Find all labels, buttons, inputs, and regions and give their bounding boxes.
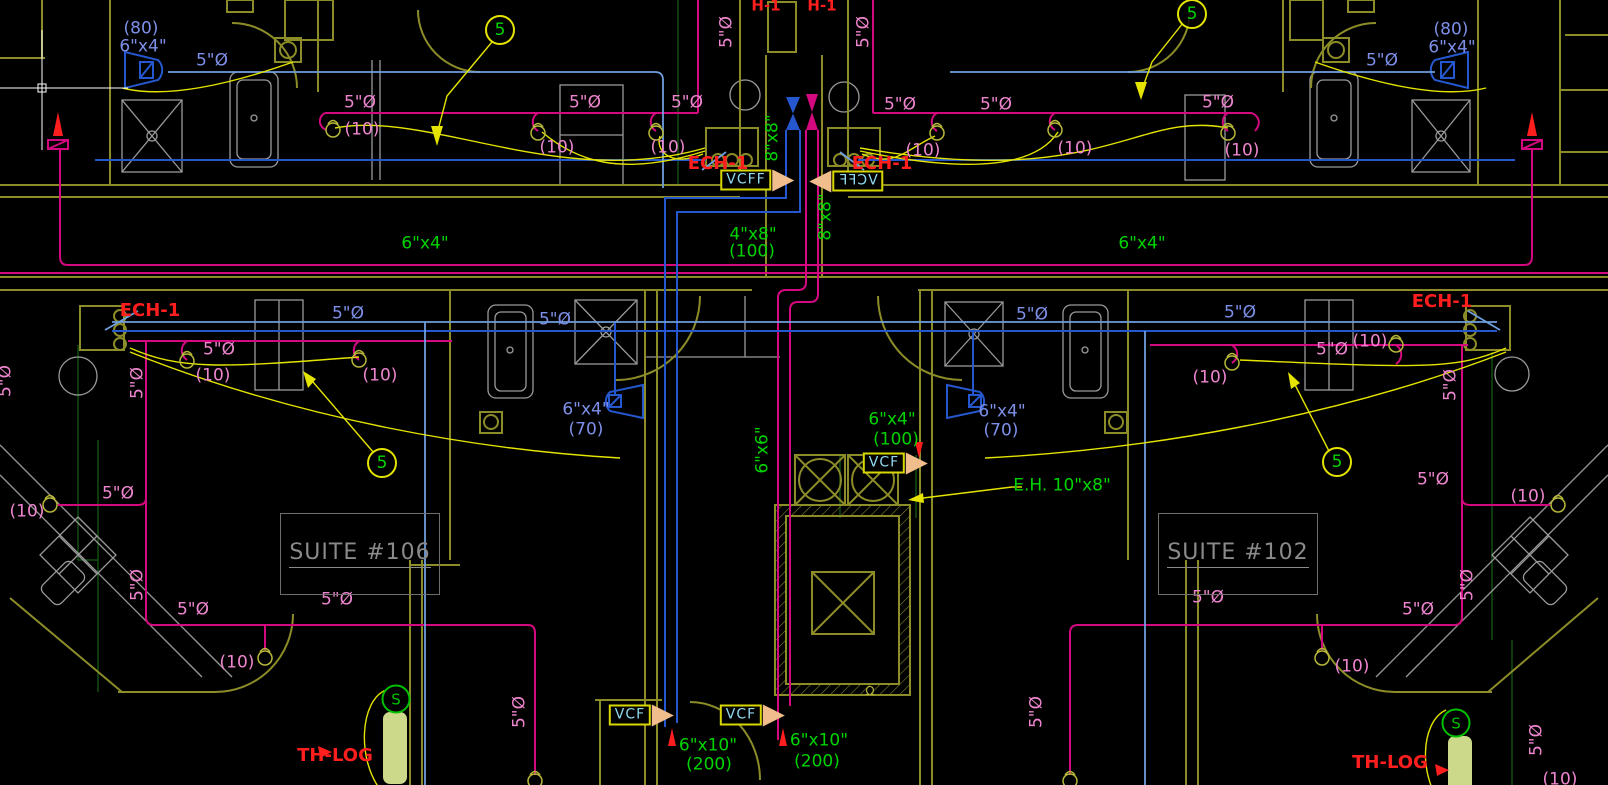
airflow-label: (100) xyxy=(873,432,919,449)
door-symbol: Ω xyxy=(865,685,874,697)
diameter-label: 5"Ø xyxy=(102,486,134,503)
diameter-label: 5"Ø xyxy=(1417,472,1449,489)
damper-flag-label: VCFF xyxy=(726,172,765,188)
airflow-label: (80) xyxy=(124,21,159,38)
damper-triangle-icon xyxy=(773,169,795,191)
damper-flag-box: VCFF xyxy=(720,170,771,191)
airflow-label: (200) xyxy=(794,754,840,771)
damper-flag-box: VCF xyxy=(863,453,905,474)
thermostat-tag: TH-LOG xyxy=(297,747,373,765)
airflow-label: (10) xyxy=(651,140,686,157)
equipment-tag: ECH-1 xyxy=(1412,293,1473,311)
airflow-label: (10) xyxy=(196,368,231,385)
diameter-label: 5"Ø xyxy=(1029,696,1046,728)
duct-size-label: 6"x4" xyxy=(1428,40,1475,57)
airflow-label: (10) xyxy=(363,368,398,385)
diameter-label: 5"Ø xyxy=(671,95,703,112)
airflow-label: (70) xyxy=(569,422,604,439)
damper-flag-box: VCF xyxy=(720,705,762,726)
airflow-label: (10) xyxy=(1225,143,1260,160)
airflow-label: (70) xyxy=(984,423,1019,440)
diameter-label: 5"Ø xyxy=(203,342,235,359)
duct-size-label: 8"x8" xyxy=(765,114,782,161)
diameter-label: 5"Ø xyxy=(719,16,736,48)
diameter-label: 5"Ø xyxy=(1366,53,1398,70)
callout-balloon: 5 xyxy=(485,15,515,45)
diameter-label: 5"Ø xyxy=(177,602,209,619)
diameter-label: 5"Ø xyxy=(1316,342,1348,359)
airflow-label: (10) xyxy=(1353,334,1388,351)
suite-name-box: SUITE #102 xyxy=(1158,513,1318,595)
equipment-tag: H-1 xyxy=(807,0,836,14)
damper-flag-box: VCFF xyxy=(832,171,883,192)
duct-size-label: 6"x4" xyxy=(562,402,609,419)
airflow-label: (10) xyxy=(345,122,380,139)
diameter-label: 5"Ø xyxy=(1529,724,1546,756)
diameter-label: 5"Ø xyxy=(1460,569,1477,601)
callout-balloon: 5 xyxy=(367,448,397,478)
damper-triangle-icon xyxy=(652,704,674,726)
callout-balloon: 5 xyxy=(1177,0,1207,29)
suite-name-box: SUITE #106 xyxy=(280,513,440,595)
airflow-label: (10) xyxy=(10,504,45,521)
diameter-label: 5"Ø xyxy=(332,306,364,323)
diameter-label: 5"Ø xyxy=(856,16,873,48)
cad-drawing-canvas: (80)6"x4"5"Ø(80)6"x4"5"Ø5"Ø5"Ø5"Ø5"Ø6"x4… xyxy=(0,0,1608,785)
diameter-label: 5"Ø xyxy=(130,569,147,601)
duct-size-label: 6"x10" xyxy=(679,738,737,755)
duct-size-label: 6"x4" xyxy=(868,412,915,429)
thermostat-tag: TH-LOG xyxy=(1352,754,1428,772)
diameter-label: 5"Ø xyxy=(196,53,228,70)
damper-flag-box: VCF xyxy=(609,705,651,726)
callout-balloon: 5 xyxy=(1322,447,1352,477)
airflow-label: (200) xyxy=(686,757,732,774)
equipment-tag: ECH-1 xyxy=(120,302,181,320)
diameter-label: 5"Ø xyxy=(0,365,15,397)
airflow-label: (10) xyxy=(1058,141,1093,158)
sensor-symbol: S xyxy=(1442,709,1471,738)
diameter-label: 5"Ø xyxy=(1224,305,1256,322)
annotation-labels-layer: (80)6"x4"5"Ø(80)6"x4"5"Ø5"Ø5"Ø5"Ø5"Ø6"x4… xyxy=(0,0,1608,785)
damper-triangle-icon xyxy=(809,170,831,192)
equipment-tag: H-1 xyxy=(751,0,780,14)
diameter-label: 5"Ø xyxy=(512,696,529,728)
airflow-label: (10) xyxy=(1511,489,1546,506)
suite-name-label: SUITE #102 xyxy=(1167,540,1308,568)
duct-size-label: 6"x6" xyxy=(755,426,772,473)
airflow-label: (10) xyxy=(540,140,575,157)
suite-name-label: SUITE #106 xyxy=(289,540,430,568)
duct-size-label: 6"x4" xyxy=(119,39,166,56)
diameter-label: 5"Ø xyxy=(884,97,916,114)
damper-triangle-icon xyxy=(763,704,785,726)
diameter-label: 5"Ø xyxy=(130,367,147,399)
diameter-label: 5"Ø xyxy=(539,312,571,329)
diameter-label: 5"Ø xyxy=(1016,307,1048,324)
electric-heater-label: E.H. 10"x8" xyxy=(1013,478,1111,495)
duct-size-label: 8"x8" xyxy=(818,193,835,240)
airflow-label: (100) xyxy=(729,244,775,261)
damper-flag-label: VCFF xyxy=(838,174,877,189)
diameter-label: 5"Ø xyxy=(1202,95,1234,112)
airflow-label: (10) xyxy=(1335,659,1370,676)
diameter-label: 5"Ø xyxy=(1402,602,1434,619)
duct-size-label: 6"x4" xyxy=(978,404,1025,421)
diameter-label: 5"Ø xyxy=(1443,369,1460,401)
damper-flag-label: VCF xyxy=(615,707,645,723)
diameter-label: 5"Ø xyxy=(344,95,376,112)
diameter-label: 5"Ø xyxy=(980,97,1012,114)
airflow-label: (80) xyxy=(1434,22,1469,39)
airflow-label: (10) xyxy=(1193,370,1228,387)
diameter-label: 5"Ø xyxy=(569,95,601,112)
damper-flag-label: VCF xyxy=(869,455,899,471)
airflow-label: (10) xyxy=(1543,772,1578,785)
damper-flag-label: VCF xyxy=(726,707,756,723)
duct-size-label: 6"x4" xyxy=(1118,236,1165,253)
damper-triangle-icon xyxy=(906,452,928,474)
duct-size-label: 6"x4" xyxy=(401,236,448,253)
sensor-symbol: S xyxy=(382,685,411,714)
airflow-label: (10) xyxy=(220,655,255,672)
duct-size-label: 6"x10" xyxy=(790,733,848,750)
